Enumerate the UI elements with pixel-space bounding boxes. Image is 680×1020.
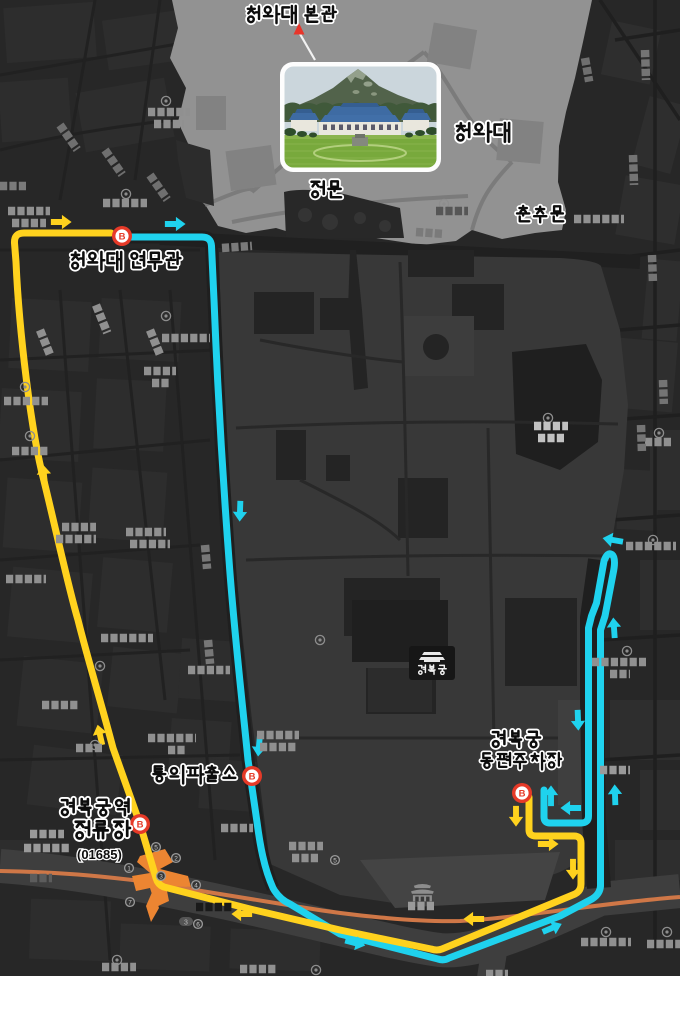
svg-text:B: B (137, 819, 144, 830)
svg-text:5: 5 (333, 857, 337, 864)
svg-text:B: B (119, 231, 126, 242)
svg-text:3: 3 (184, 920, 188, 927)
svg-text:1: 1 (127, 865, 131, 872)
svg-text:5: 5 (154, 844, 158, 851)
svg-text:B: B (249, 771, 256, 782)
svg-text:2: 2 (174, 855, 178, 862)
svg-text:(01685): (01685) (77, 847, 122, 862)
svg-text:4: 4 (194, 882, 198, 889)
svg-text:3: 3 (159, 873, 163, 880)
svg-text:7: 7 (128, 899, 132, 906)
svg-text:6: 6 (196, 921, 200, 928)
svg-text:B: B (519, 788, 526, 799)
